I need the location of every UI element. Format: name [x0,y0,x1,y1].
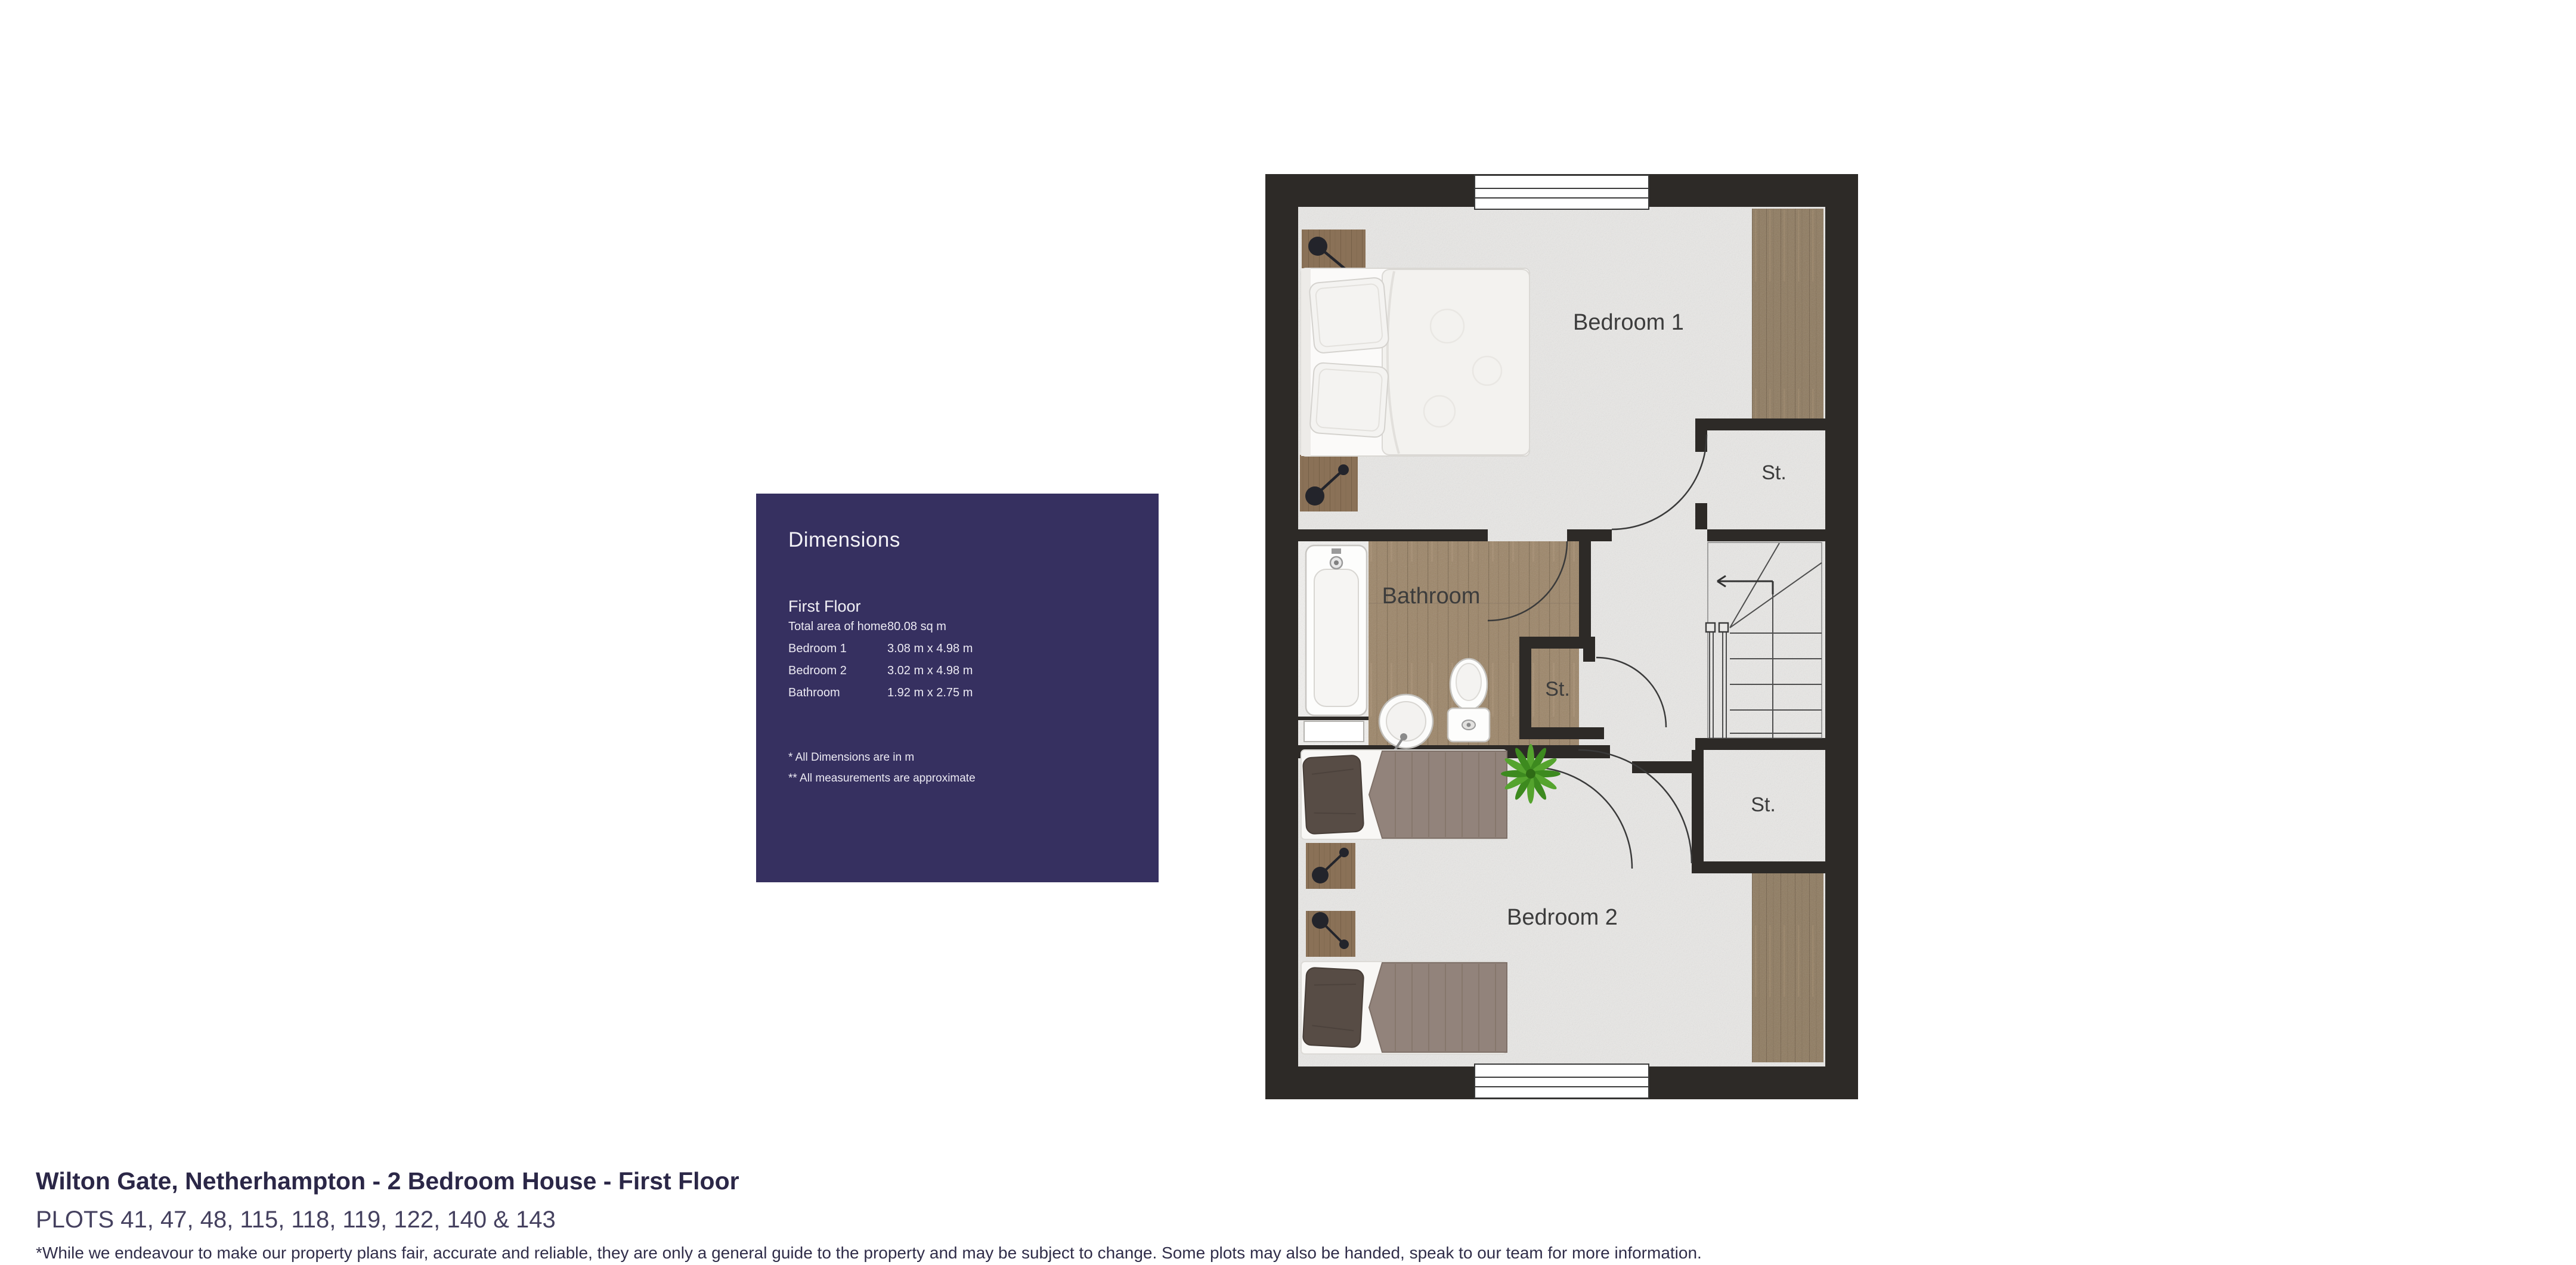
nightstand [1300,455,1358,511]
double-bed [1301,268,1529,456]
table-row: Total area of home 80.08 sq m [788,620,1122,642]
row-label: Bathroom [788,686,887,708]
bath-tap-icon [1332,548,1341,554]
bathroom-label: Bathroom [1382,584,1481,609]
panel-title: Dimensions [788,528,900,552]
pillow [1309,362,1389,438]
duvet [1382,269,1529,455]
bedroom1-label: Bedroom 1 [1573,310,1684,335]
row-value: 80.08 sq m [887,620,946,642]
bath-shelf [1304,721,1364,742]
pillow [1303,755,1364,835]
duvet [1369,751,1507,838]
footnote: * All Dimensions are in m [788,751,914,764]
single-bed [1301,962,1507,1054]
row-label: Bedroom 1 [788,642,887,664]
single-bed [1301,750,1507,839]
nightstand [1306,911,1355,957]
dimensions-panel: Dimensions First Floor Total area of hom… [756,494,1159,882]
bath [1298,545,1368,742]
nightstand [1306,843,1355,889]
dimensions-table: Total area of home 80.08 sq m Bedroom 1 … [788,620,1122,708]
row-value: 3.08 m x 4.98 m [887,642,973,664]
page-title: Wilton Gate, Netherhampton - 2 Bedroom H… [36,1167,739,1195]
bedroom2-label: Bedroom 2 [1507,905,1618,930]
row-label: Bedroom 2 [788,664,887,686]
panel-section-heading: First Floor [788,597,861,616]
duvet [1369,963,1507,1052]
plots-subtitle: PLOTS 41, 47, 48, 115, 118, 119, 122, 14… [36,1207,556,1233]
window-bottom [1475,1064,1649,1098]
floorplan: Bedroom 1 Bathroom Bedroom 2 St. St. St. [1265,174,1858,1099]
pillow [1309,277,1389,354]
table-row: Bedroom 2 3.02 m x 4.98 m [788,664,1122,686]
toilet [1448,659,1490,742]
table-row: Bedroom 1 3.08 m x 4.98 m [788,642,1122,664]
storage1-label: St. [1761,461,1787,484]
footnote: ** All measurements are approximate [788,772,976,785]
table-row: Bathroom 1.92 m x 2.75 m [788,686,1122,708]
row-label: Total area of home [788,620,887,642]
row-value: 3.02 m x 4.98 m [887,664,973,686]
window-top [1475,175,1649,209]
storage3-label: St. [1751,793,1776,816]
row-value: 1.92 m x 2.75 m [887,686,973,708]
pillow [1303,968,1364,1048]
disclaimer-text: *While we endeavour to make our property… [36,1244,1702,1263]
storage2-label: St. [1545,678,1570,700]
